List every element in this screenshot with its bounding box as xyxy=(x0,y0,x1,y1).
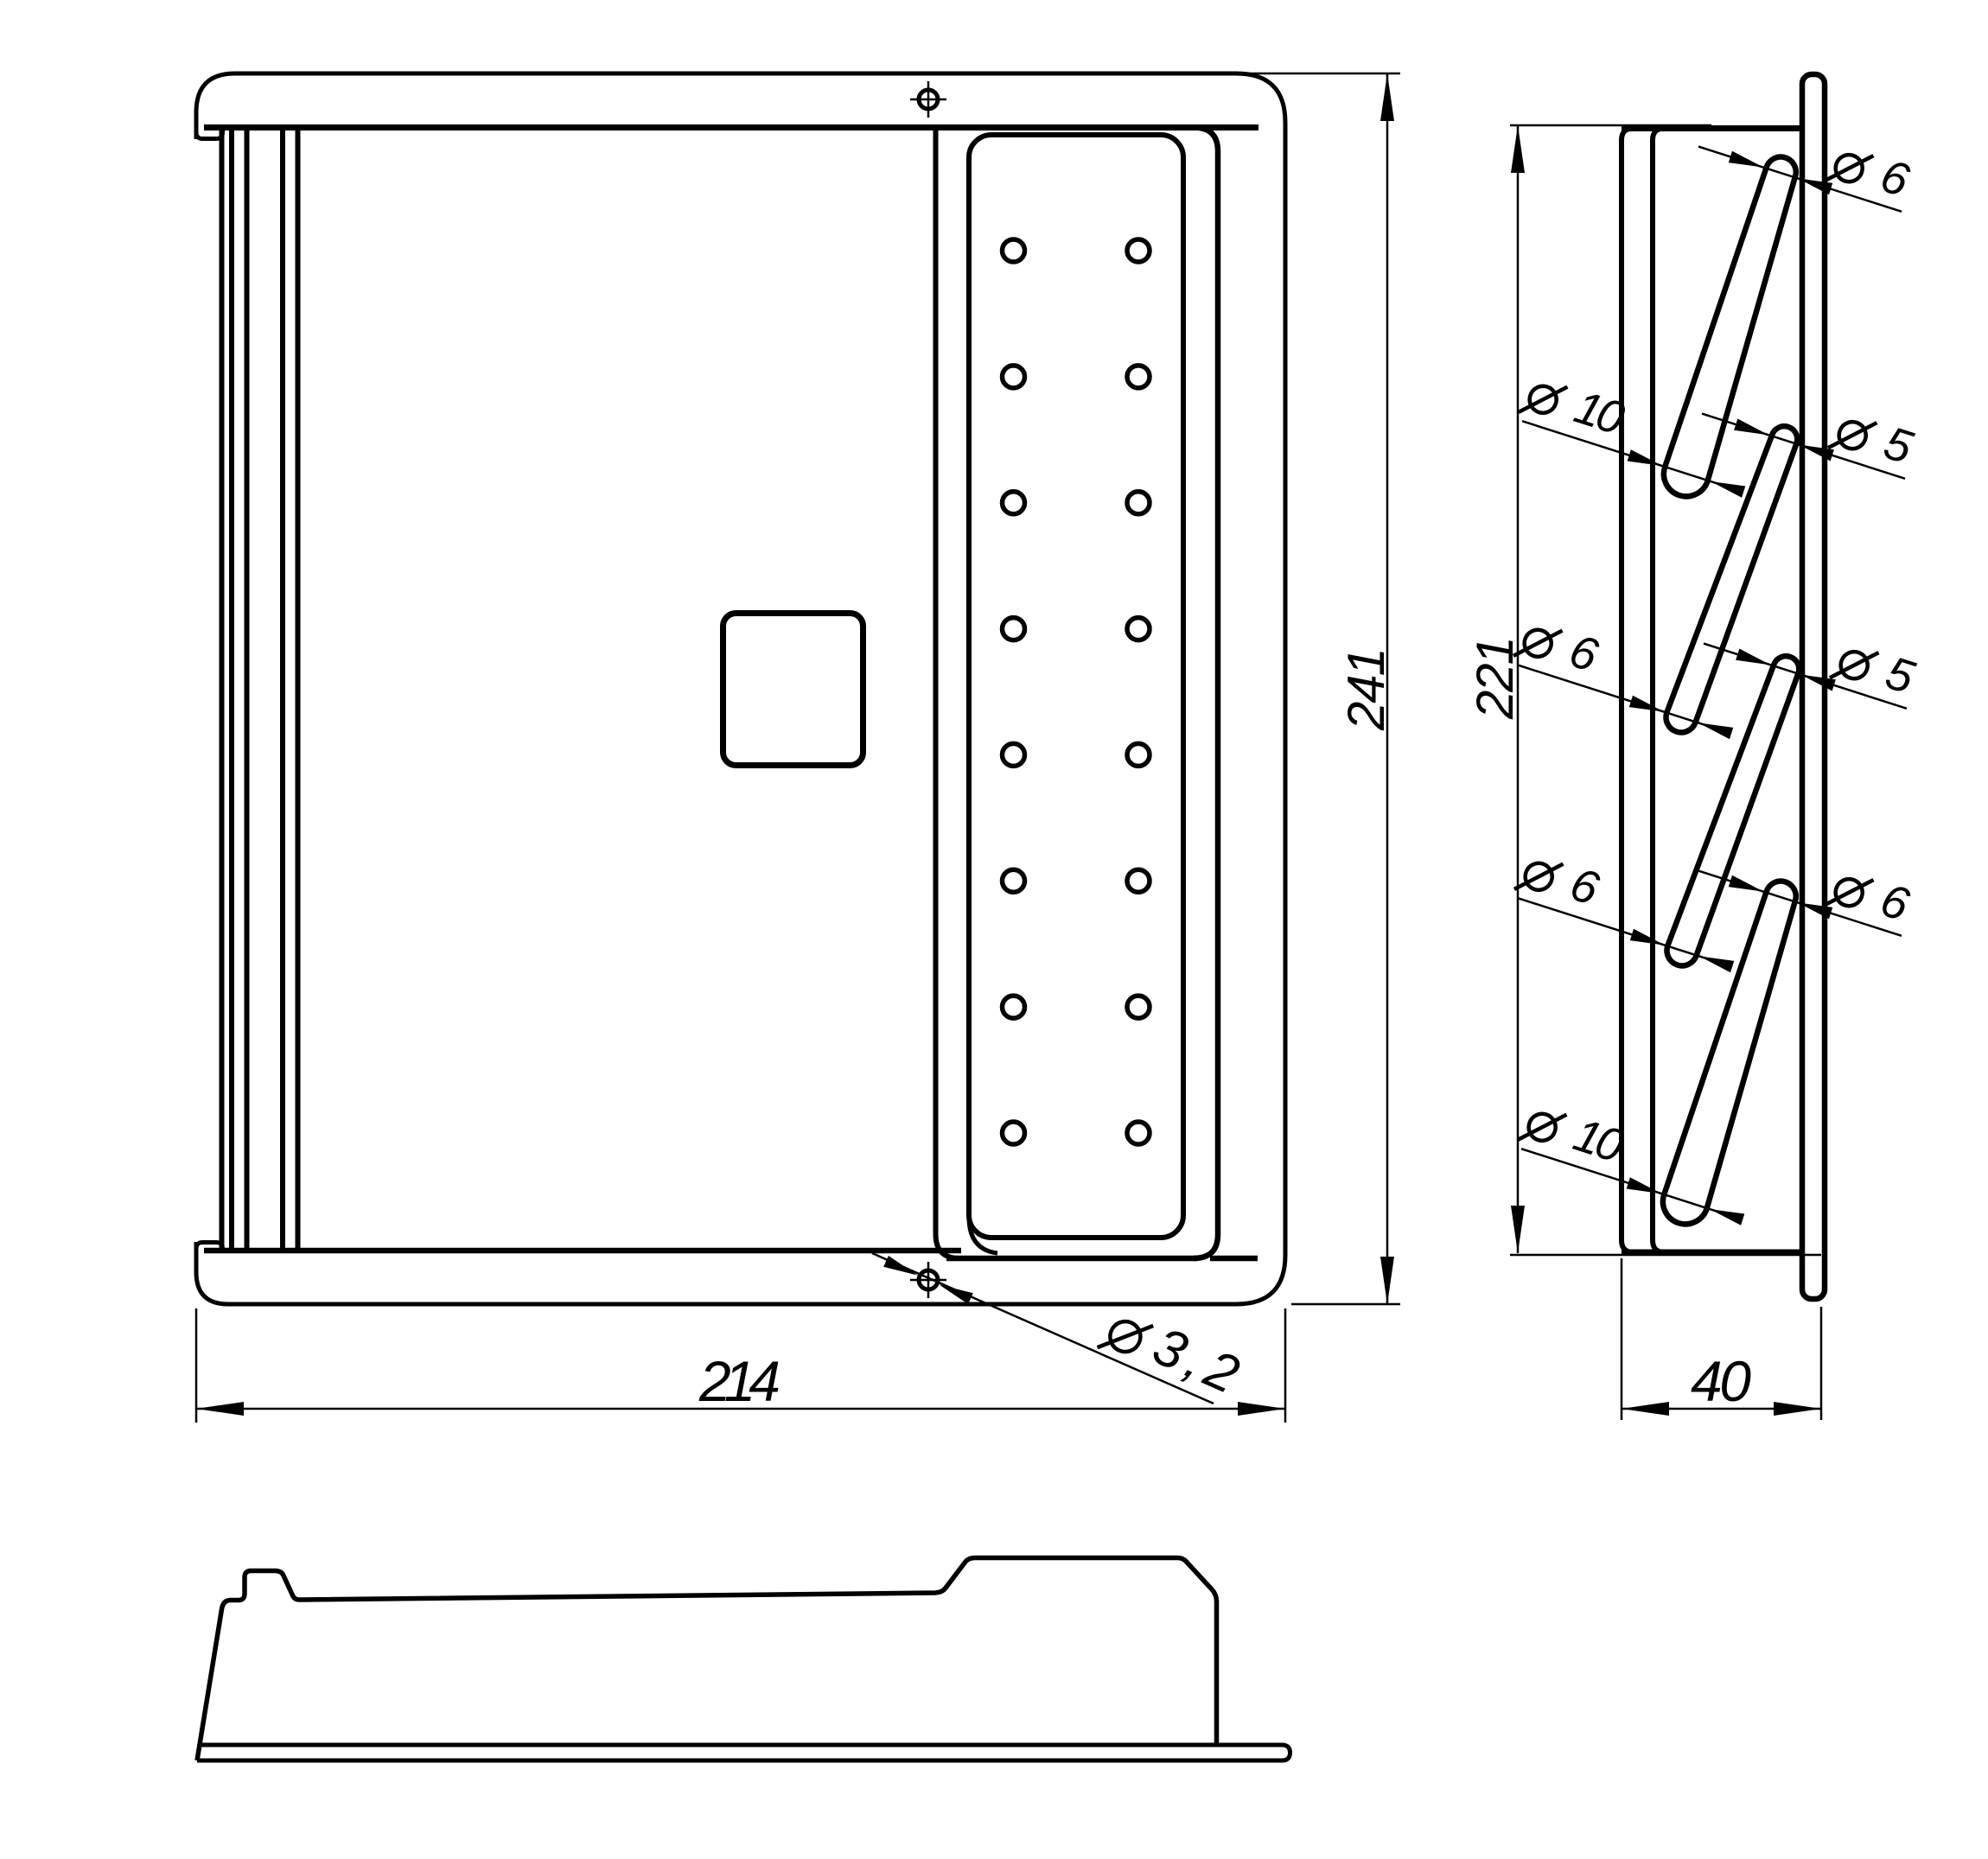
svg-text:241: 241 xyxy=(1337,647,1395,731)
svg-text:221: 221 xyxy=(1466,636,1524,720)
svg-text:214: 214 xyxy=(698,1349,781,1413)
svg-text:40: 40 xyxy=(1691,1349,1751,1413)
